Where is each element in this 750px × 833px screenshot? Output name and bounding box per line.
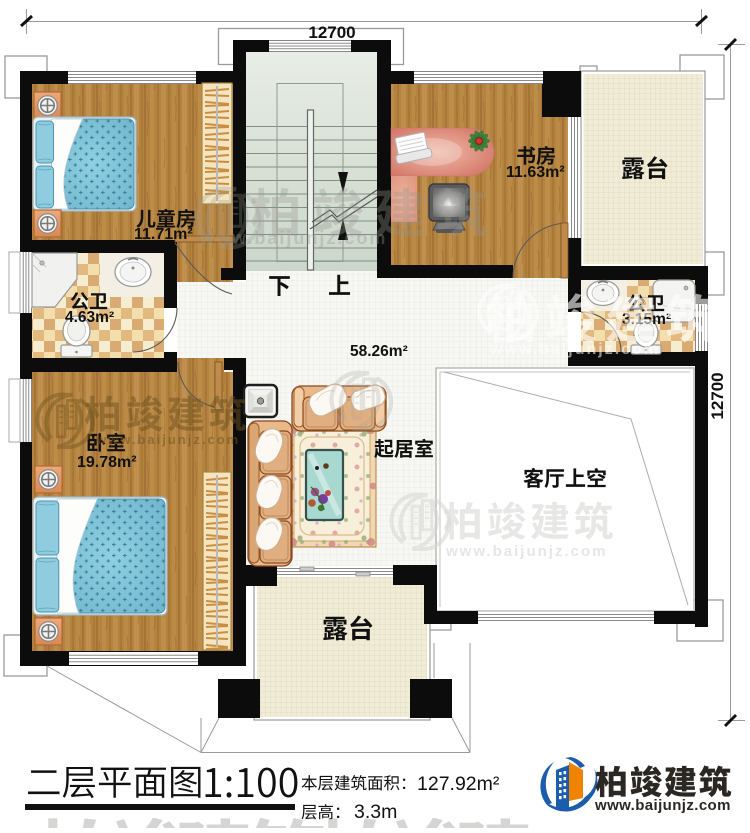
svg-text:www.baijunjz.com: www.baijunjz.com	[445, 543, 607, 560]
svg-text:3.3m: 3.3m	[354, 801, 397, 823]
svg-text:www.baijunjz.com: www.baijunjz.com	[199, 228, 387, 248]
svg-text:12700: 12700	[308, 23, 355, 42]
svg-text:12700: 12700	[708, 372, 727, 419]
svg-text:www.baijunjz.com: www.baijunjz.com	[489, 341, 660, 358]
svg-text:11.63m²: 11.63m²	[506, 164, 565, 181]
svg-text:11.71m²: 11.71m²	[134, 226, 193, 243]
svg-text:19.78m²: 19.78m²	[77, 454, 137, 471]
svg-text:127.92m²: 127.92m²	[417, 773, 500, 795]
svg-text:58.26m²: 58.26m²	[350, 343, 408, 360]
svg-text:4.63m²: 4.63m²	[65, 309, 114, 326]
svg-text:www.baijunjz.com: www.baijunjz.com	[594, 797, 731, 814]
svg-text:www.baijunjz.com: www.baijunjz.com	[95, 432, 240, 447]
